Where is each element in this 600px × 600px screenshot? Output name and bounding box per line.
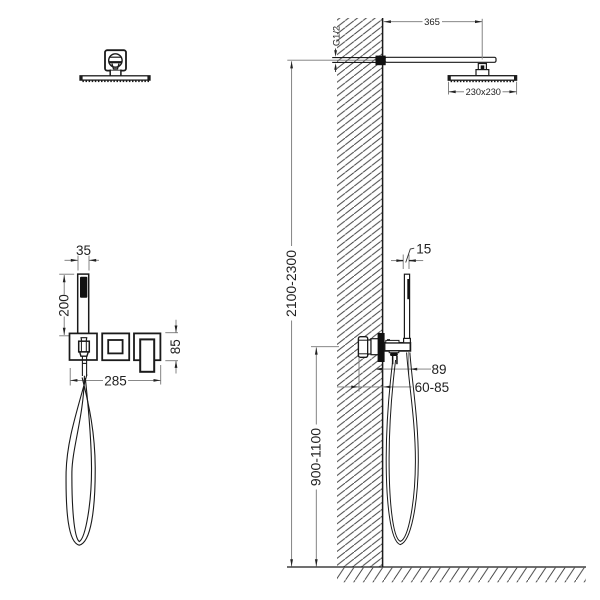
svg-text:200: 200 <box>56 294 71 317</box>
svg-text:900-1100: 900-1100 <box>308 428 324 486</box>
svg-text:85: 85 <box>168 339 183 354</box>
svg-text:365: 365 <box>424 17 440 28</box>
svg-text:285: 285 <box>104 374 127 389</box>
svg-text:230x230: 230x230 <box>466 87 501 97</box>
svg-text:60-85: 60-85 <box>415 380 450 395</box>
svg-text:15: 15 <box>416 241 431 256</box>
svg-text:89: 89 <box>432 362 447 377</box>
svg-text:35: 35 <box>76 243 91 258</box>
svg-text:2100-2300: 2100-2300 <box>283 250 299 317</box>
svg-text:G1/2: G1/2 <box>332 26 342 46</box>
